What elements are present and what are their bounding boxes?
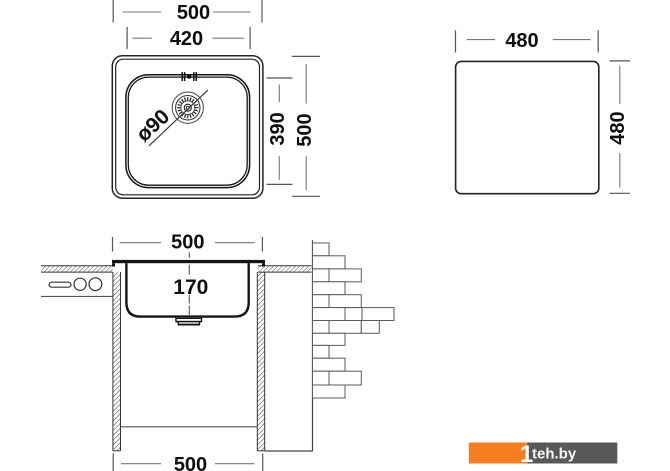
svg-text:500: 500 xyxy=(171,232,204,254)
svg-text:420: 420 xyxy=(170,28,203,50)
svg-text:teh.by: teh.by xyxy=(532,445,577,462)
svg-text:500: 500 xyxy=(177,2,210,24)
svg-text:500: 500 xyxy=(294,113,316,146)
svg-text:390: 390 xyxy=(267,112,289,145)
svg-text:480: 480 xyxy=(607,111,629,144)
svg-text:480: 480 xyxy=(505,30,538,52)
svg-text:170: 170 xyxy=(173,276,208,299)
svg-text:500: 500 xyxy=(174,454,207,471)
